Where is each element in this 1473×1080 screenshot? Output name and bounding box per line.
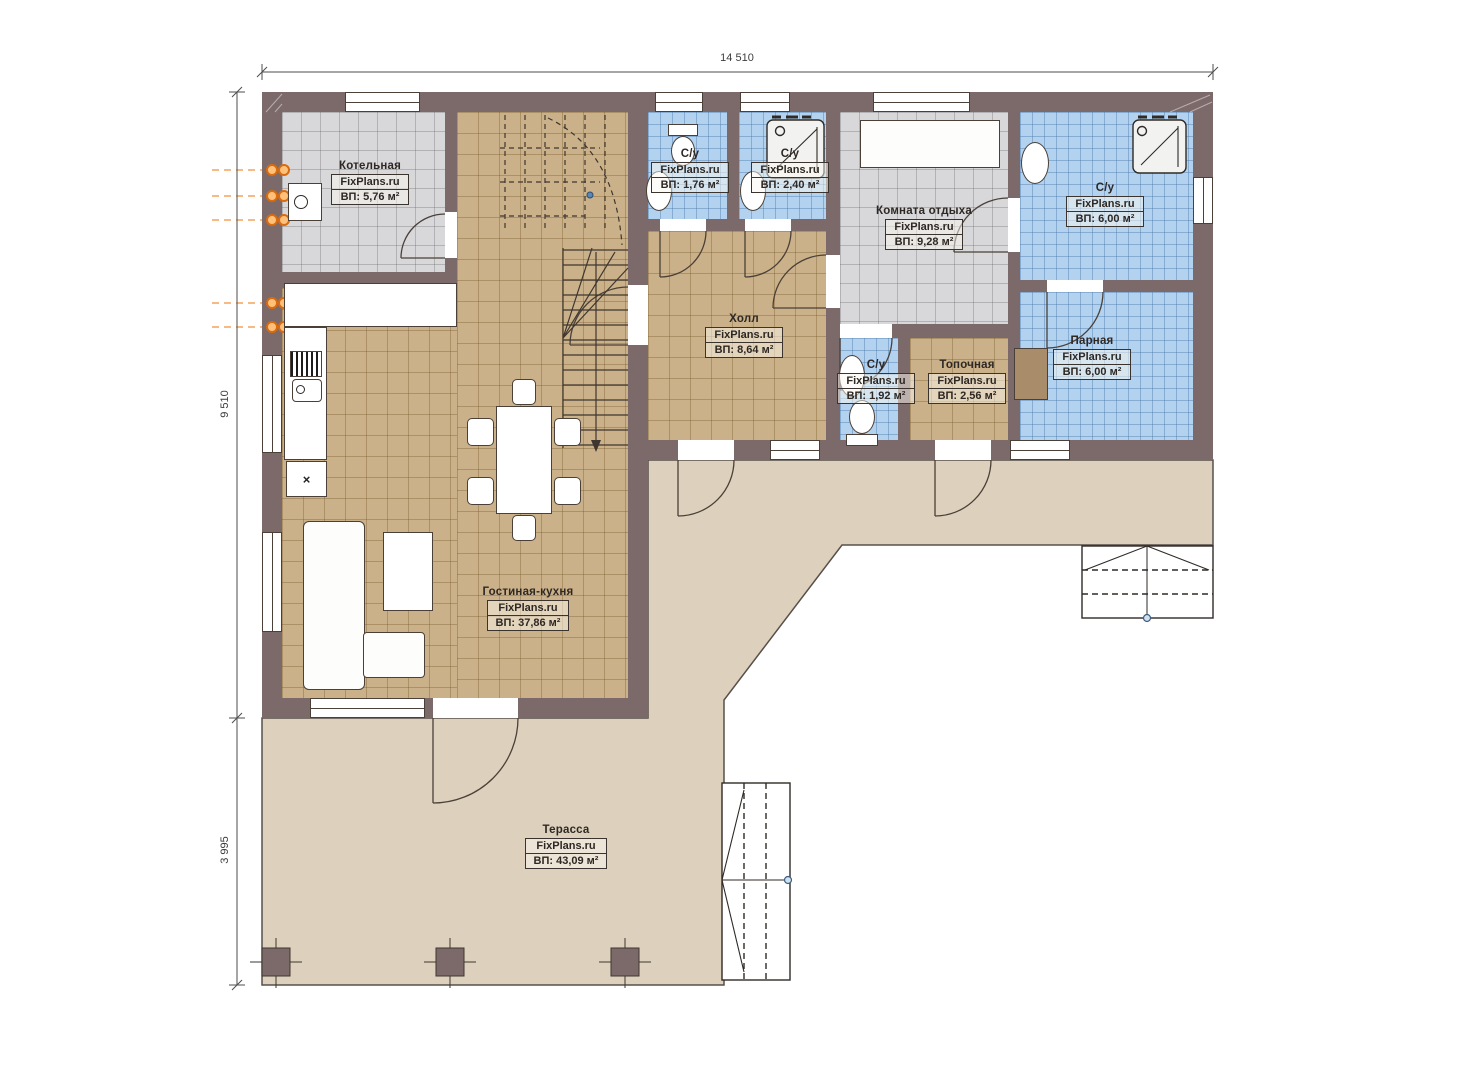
stairs-node-dot bbox=[587, 192, 593, 198]
dining-chair bbox=[467, 477, 494, 505]
watermark: FixPlans.ru bbox=[1067, 197, 1142, 211]
toilet-tank bbox=[846, 434, 878, 446]
room-area: ВП: 5,76 м² bbox=[332, 189, 407, 204]
coffee-table bbox=[383, 532, 433, 611]
watermark: FixPlans.ru bbox=[652, 163, 727, 177]
dining-table bbox=[496, 406, 552, 514]
living-sofa-chaise bbox=[363, 632, 425, 678]
watermark: FixPlans.ru bbox=[1054, 350, 1129, 364]
dimension-total-width: 14 510 bbox=[697, 52, 777, 64]
room-label-steam-room: Парная FixPlans.ru ВП: 6,00 м² bbox=[1042, 335, 1142, 380]
room-name: Котельная bbox=[305, 160, 435, 172]
room-name: С/у bbox=[740, 148, 840, 160]
watermark: FixPlans.ru bbox=[886, 220, 961, 234]
room-area: ВП: 9,28 м² bbox=[886, 234, 961, 249]
sink-drain-icon bbox=[296, 385, 305, 394]
living-sofa bbox=[303, 521, 365, 690]
dining-chair bbox=[554, 477, 581, 505]
room-name: Холл bbox=[694, 313, 794, 325]
room-name: С/у bbox=[1055, 182, 1155, 194]
door-arc-wc1 bbox=[660, 231, 706, 277]
watermark: FixPlans.ru bbox=[929, 374, 1004, 388]
room-area: ВП: 37,86 м² bbox=[488, 615, 569, 630]
terrace-steps-bottom bbox=[722, 783, 792, 980]
room-name: Топочная bbox=[917, 359, 1017, 371]
door-arc-boiler bbox=[401, 214, 445, 258]
door-arc-rest bbox=[773, 255, 826, 308]
room-area: ВП: 8,64 м² bbox=[706, 342, 781, 357]
room-label-wc2: С/у FixPlans.ru ВП: 2,40 м² bbox=[740, 148, 840, 193]
stairs-arrow bbox=[591, 440, 601, 452]
kitchen-counter-top bbox=[284, 283, 457, 327]
room-area: ВП: 2,56 м² bbox=[929, 388, 1004, 403]
dimension-main-height: 9 510 bbox=[219, 374, 231, 434]
dining-chair bbox=[512, 515, 536, 541]
kitchen-drainer bbox=[290, 351, 322, 377]
room-name: Парная bbox=[1042, 335, 1142, 347]
stairs-upper-flight-dashed bbox=[500, 115, 622, 245]
room-name: С/у bbox=[640, 148, 740, 160]
room-name: Терасса bbox=[506, 824, 626, 836]
room-area: ВП: 1,92 м² bbox=[838, 388, 913, 403]
room-label-living-kitchen: Гостиная-кухня FixPlans.ru ВП: 37,86 м² bbox=[468, 586, 588, 631]
kitchen-cabinet-x: × bbox=[286, 461, 327, 497]
room-label-wc-top-right: С/у FixPlans.ru ВП: 6,00 м² bbox=[1055, 182, 1155, 227]
room-area: ВП: 43,09 м² bbox=[526, 853, 607, 868]
toilet-bowl bbox=[849, 400, 875, 434]
toilet-tank bbox=[668, 124, 698, 136]
room-name: Комната отдыха bbox=[854, 205, 994, 217]
door-arc-hall bbox=[570, 287, 628, 345]
watermark: FixPlans.ru bbox=[838, 374, 913, 388]
room-label-boiler: Котельная FixPlans.ru ВП: 5,76 м² bbox=[305, 160, 435, 205]
kitchen-sink bbox=[292, 379, 322, 402]
watermark: FixPlans.ru bbox=[526, 839, 607, 853]
terrace-steps-right bbox=[1082, 546, 1213, 622]
room-label-wc3: С/у FixPlans.ru ВП: 1,92 м² bbox=[826, 359, 926, 404]
door-arc-wc2 bbox=[745, 231, 791, 277]
room-label-wc1: С/у FixPlans.ru ВП: 1,76 м² bbox=[640, 148, 740, 193]
watermark: FixPlans.ru bbox=[706, 328, 781, 342]
door-arc-terrace-2 bbox=[935, 460, 991, 516]
door-arc-terrace-1 bbox=[678, 460, 734, 516]
floor-plan: × Котельная FixPlans.ru ВП: 5,76 м² С/у … bbox=[0, 0, 1473, 1080]
dimension-terrace-height: 3 995 bbox=[219, 820, 231, 880]
room-label-hall: Холл FixPlans.ru ВП: 8,64 м² bbox=[694, 313, 794, 358]
dining-chair bbox=[554, 418, 581, 446]
room-name: Гостиная-кухня bbox=[468, 586, 588, 598]
rest-room-sofa bbox=[860, 120, 1000, 168]
room-label-terrace: Терасса FixPlans.ru ВП: 43,09 м² bbox=[506, 824, 626, 869]
shower-wc-top-right bbox=[1133, 117, 1186, 173]
watermark: FixPlans.ru bbox=[332, 175, 407, 189]
bathroom-sink bbox=[1021, 142, 1049, 184]
corner-hatches bbox=[266, 94, 1212, 112]
room-name: С/у bbox=[826, 359, 926, 371]
dining-chair bbox=[512, 379, 536, 405]
room-area: ВП: 6,00 м² bbox=[1067, 211, 1142, 226]
terrace-columns bbox=[250, 938, 651, 988]
room-area: ВП: 1,76 м² bbox=[652, 177, 727, 192]
watermark: FixPlans.ru bbox=[488, 601, 569, 615]
room-area: ВП: 6,00 м² bbox=[1054, 364, 1129, 379]
room-label-furnace: Топочная FixPlans.ru ВП: 2,56 м² bbox=[917, 359, 1017, 404]
room-area: ВП: 2,40 м² bbox=[752, 177, 827, 192]
watermark: FixPlans.ru bbox=[752, 163, 827, 177]
door-arc-living-terrace bbox=[433, 718, 518, 803]
dining-chair bbox=[467, 418, 494, 446]
room-label-rest-room: Комната отдыха FixPlans.ru ВП: 9,28 м² bbox=[854, 205, 994, 250]
